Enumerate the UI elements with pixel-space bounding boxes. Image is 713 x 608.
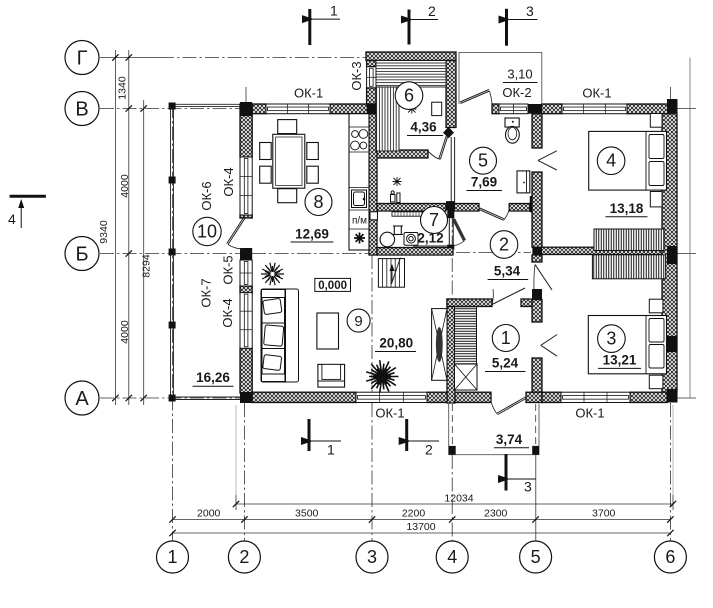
svg-text:9340: 9340 — [98, 220, 110, 244]
svg-text:12,69: 12,69 — [295, 227, 329, 242]
svg-text:5: 5 — [478, 151, 488, 171]
svg-text:10: 10 — [197, 222, 217, 242]
svg-text:2300: 2300 — [484, 508, 508, 520]
svg-text:1: 1 — [501, 328, 511, 348]
svg-text:2: 2 — [428, 3, 436, 19]
svg-text:5,24: 5,24 — [492, 356, 519, 371]
svg-text:3: 3 — [367, 547, 377, 567]
svg-text:3700: 3700 — [592, 508, 616, 520]
svg-text:7,69: 7,69 — [471, 175, 497, 190]
svg-text:16,26: 16,26 — [196, 370, 230, 385]
svg-text:2200: 2200 — [402, 508, 426, 520]
svg-text:ОК-3: ОК-3 — [349, 61, 364, 90]
svg-text:13700: 13700 — [406, 521, 435, 533]
svg-text:ОК-1: ОК-1 — [575, 406, 604, 421]
svg-text:3: 3 — [606, 329, 616, 349]
svg-text:2: 2 — [425, 442, 433, 458]
svg-text:8294: 8294 — [141, 254, 153, 278]
svg-text:Б: Б — [75, 244, 88, 266]
svg-text:ОК-1: ОК-1 — [375, 406, 404, 421]
svg-text:3,10: 3,10 — [507, 67, 532, 82]
svg-text:1340: 1340 — [117, 76, 129, 100]
svg-text:Г: Г — [77, 48, 88, 70]
svg-text:ОК-6: ОК-6 — [199, 181, 214, 210]
svg-text:п/м: п/м — [352, 216, 367, 227]
svg-text:1: 1 — [330, 3, 338, 19]
svg-text:2: 2 — [239, 547, 249, 567]
svg-text:1: 1 — [167, 547, 177, 567]
svg-text:В: В — [75, 99, 88, 121]
svg-text:1: 1 — [327, 442, 335, 458]
svg-text:7: 7 — [429, 210, 439, 230]
svg-text:ОК-1: ОК-1 — [294, 86, 323, 101]
svg-text:2000: 2000 — [197, 508, 221, 520]
svg-text:13,21: 13,21 — [603, 353, 637, 368]
svg-text:4: 4 — [447, 547, 457, 567]
svg-text:ОК-4: ОК-4 — [221, 167, 236, 196]
svg-text:2,12: 2,12 — [417, 231, 443, 246]
svg-text:13,18: 13,18 — [610, 201, 644, 216]
svg-text:3: 3 — [524, 479, 532, 495]
svg-text:А: А — [75, 388, 89, 410]
svg-text:3: 3 — [526, 3, 534, 19]
svg-text:4,36: 4,36 — [410, 120, 437, 135]
svg-text:ОК-7: ОК-7 — [199, 278, 214, 307]
svg-text:ОК-2: ОК-2 — [502, 85, 531, 100]
svg-text:5: 5 — [531, 547, 541, 567]
svg-text:4: 4 — [8, 211, 16, 227]
svg-text:0,000: 0,000 — [318, 280, 347, 292]
svg-text:4: 4 — [606, 151, 616, 171]
svg-text:6: 6 — [665, 547, 675, 567]
svg-text:ОК-4: ОК-4 — [220, 298, 235, 327]
svg-text:ОК-1: ОК-1 — [582, 86, 611, 101]
svg-text:20,80: 20,80 — [379, 336, 413, 351]
svg-text:4000: 4000 — [119, 320, 131, 344]
svg-text:4000: 4000 — [119, 174, 131, 198]
svg-text:3500: 3500 — [295, 508, 319, 520]
svg-text:8: 8 — [313, 192, 323, 212]
svg-text:3,74: 3,74 — [496, 432, 523, 447]
svg-text:5,34: 5,34 — [494, 264, 521, 279]
svg-text:2: 2 — [499, 235, 509, 255]
svg-text:9: 9 — [354, 313, 362, 330]
svg-text:6: 6 — [404, 86, 414, 106]
svg-text:12034: 12034 — [444, 493, 473, 505]
svg-text:ОК-5: ОК-5 — [221, 255, 236, 284]
